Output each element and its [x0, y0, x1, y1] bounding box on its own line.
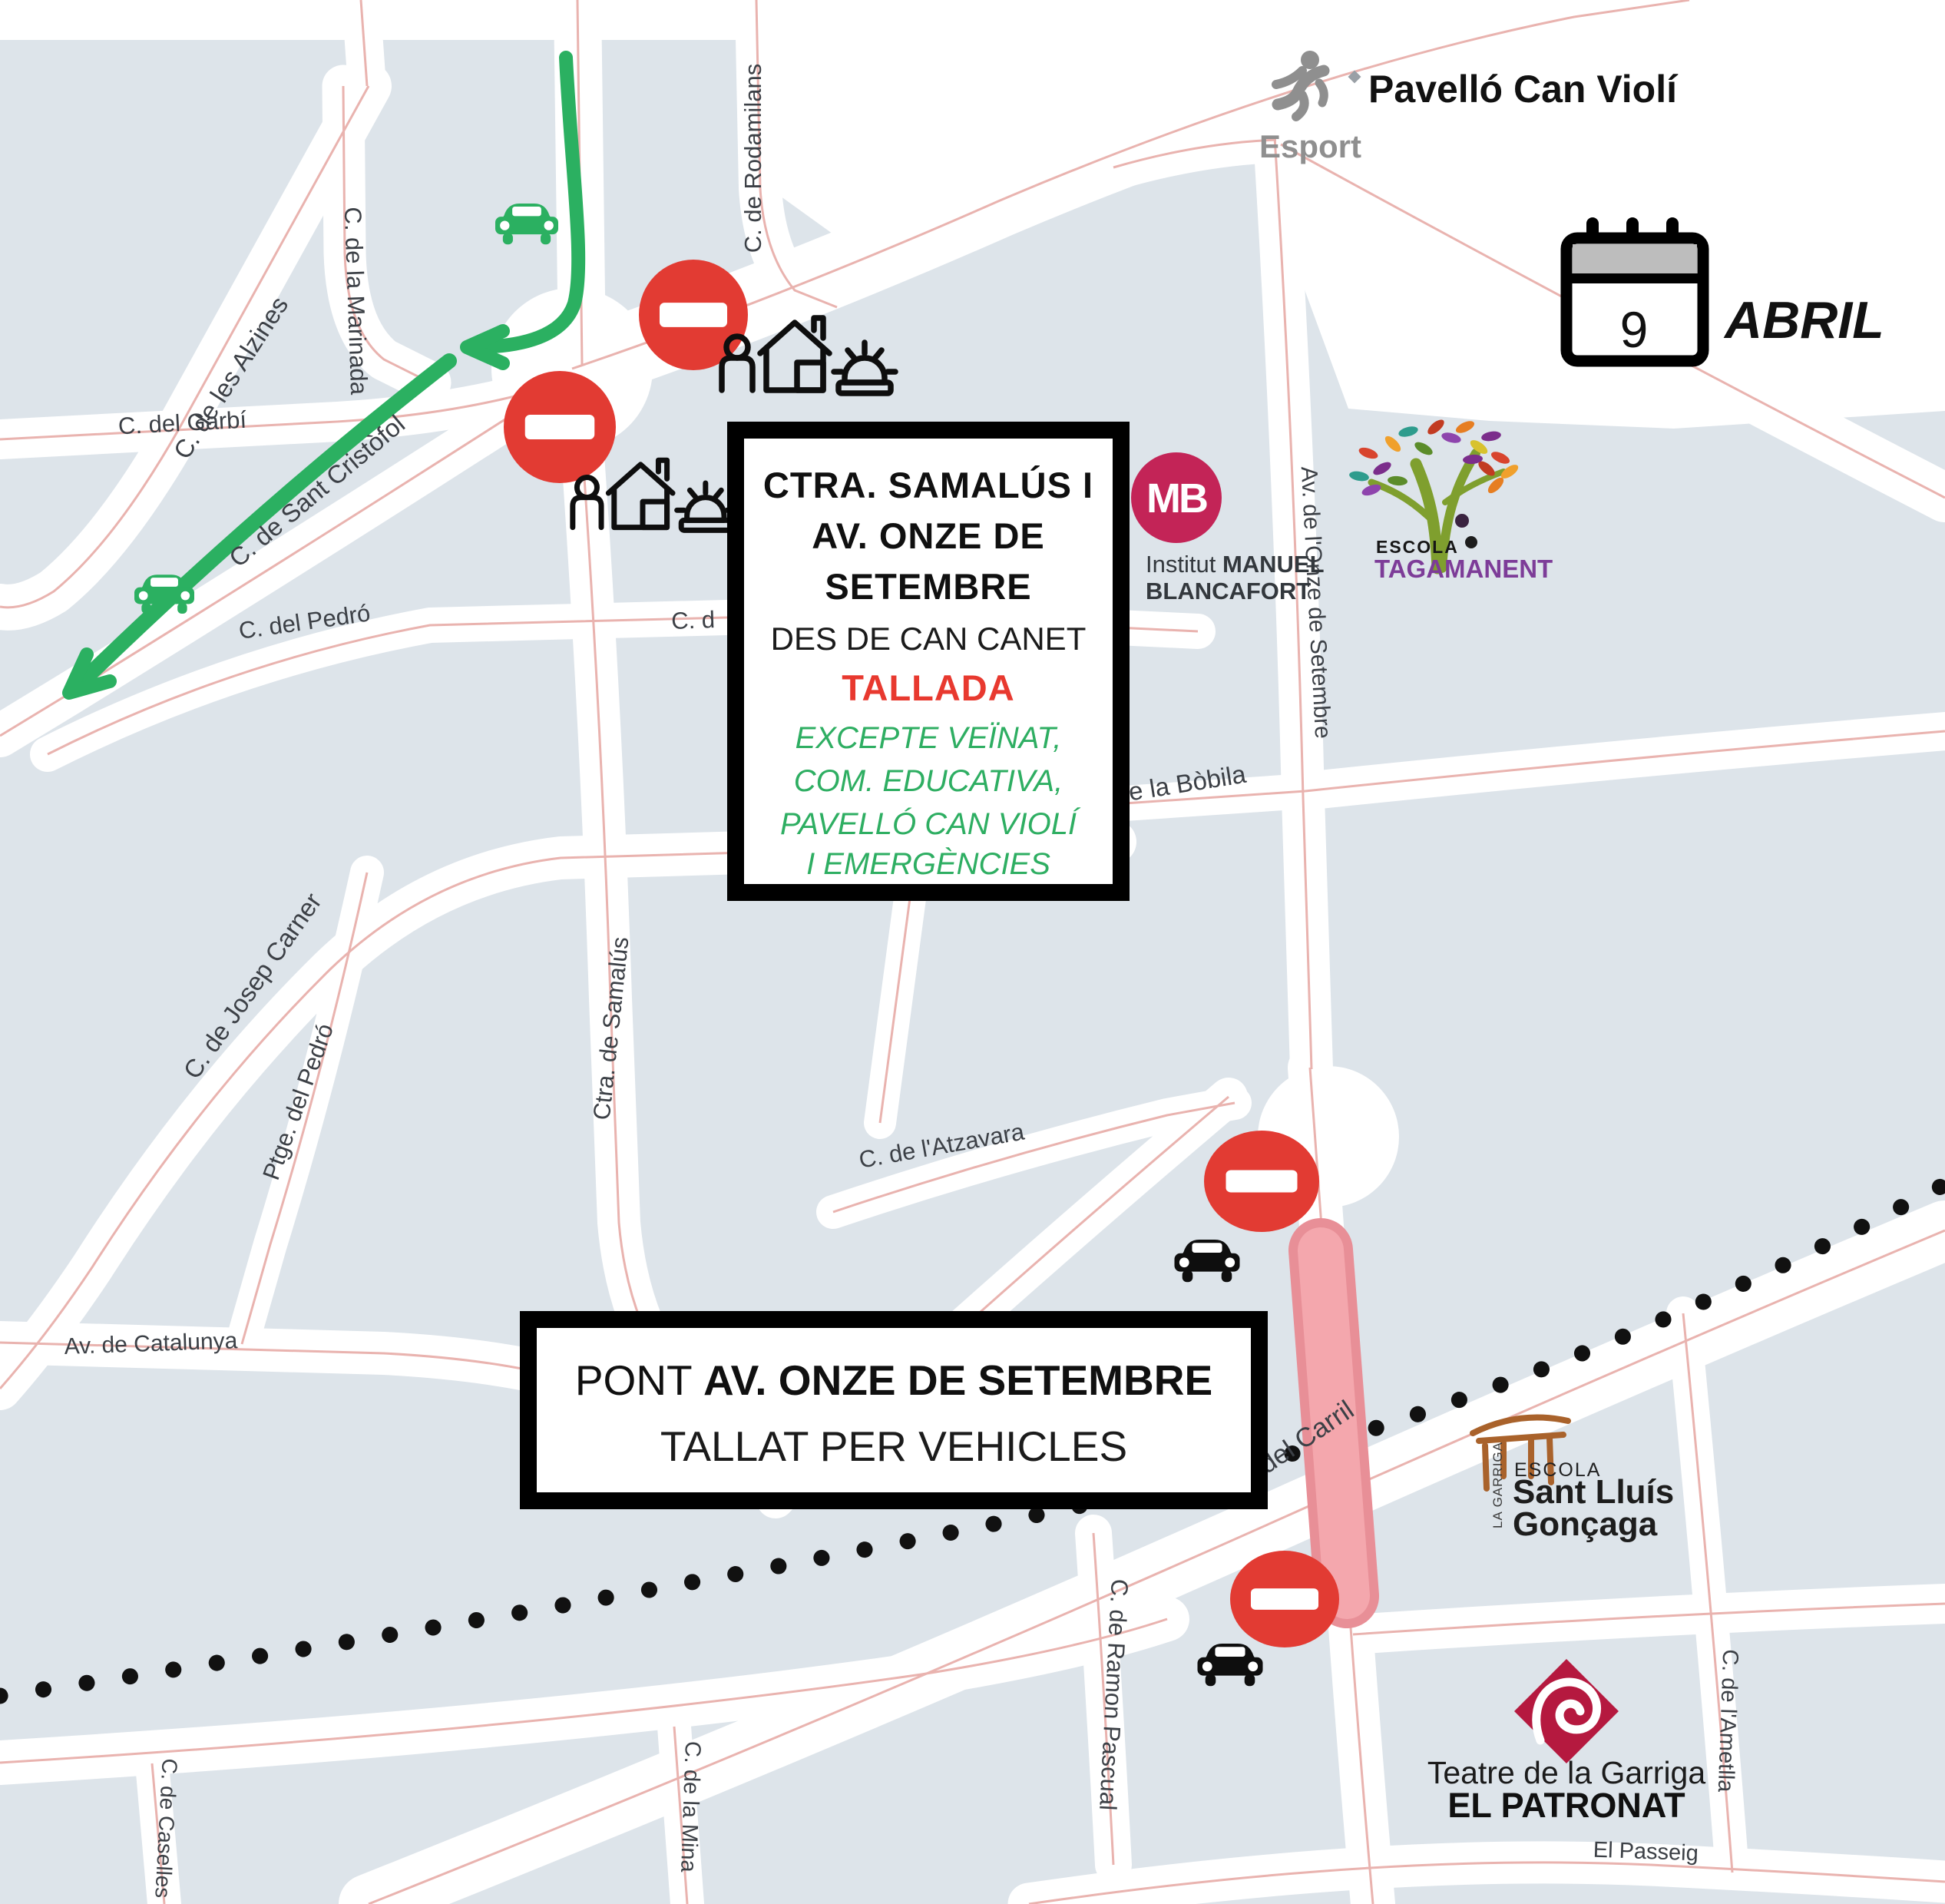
tagamanent-line2: TAGAMANENT [1374, 555, 1553, 583]
notice-box-bridge: PONT AV. ONZE DE SETEMBRE TALLAT PER VEH… [528, 1320, 1259, 1501]
street-label-pedro-east-partial: C. d [671, 606, 716, 634]
esport-label: Esport [1259, 128, 1361, 164]
main-title-line1: CTRA. SAMALÚS I [763, 465, 1093, 505]
bridge-prefix: PONT [575, 1356, 703, 1404]
date-month: ABRIL [1723, 291, 1884, 349]
street-label-passeig: El Passeig [1593, 1838, 1699, 1866]
sant-lluis-line3: Gonçaga [1513, 1505, 1658, 1543]
venue-title: Pavelló Can Violí [1368, 68, 1679, 111]
tree-figure-1 [1455, 514, 1469, 528]
main-exception-2: COM. EDUCATIVA, [794, 764, 1063, 798]
date-day: 9 [1620, 301, 1649, 358]
no-entry-icon-2 [504, 371, 616, 483]
page-title: Pavelló Can Violí [1348, 68, 1679, 111]
tree-figure-2 [1465, 536, 1477, 548]
map-canvas: C. de les Alzines C. de la Marinada C. d… [0, 0, 1945, 1904]
teatre-line2: EL PATRONAT [1447, 1786, 1685, 1825]
main-exception-1: EXCEPTE VEÏNAT, [796, 721, 1062, 755]
main-title-line3: SETEMBRE [825, 566, 1031, 607]
street-label-rodamilans: C. de Rodamilans [739, 64, 766, 253]
institut-name-bold2: BLANCAFORT [1146, 578, 1311, 604]
main-title-line2: AV. ONZE DE [812, 515, 1045, 556]
no-entry-icon-3 [1204, 1131, 1319, 1232]
main-exception-4: I EMERGÈNCIES [806, 846, 1050, 881]
institut-name-light: Institut [1146, 551, 1222, 578]
no-entry-icon-4 [1230, 1551, 1339, 1647]
main-status: TALLADA [842, 667, 1014, 708]
institut-name-bold: MANUEL [1222, 551, 1325, 578]
main-subtitle: DES DE CAN CANET [771, 621, 1087, 657]
road-closure-infographic: { "header": { "venue_title": "Pavelló Ca… [0, 0, 1945, 1904]
mb-monogram: MB [1146, 475, 1207, 522]
notice-box-main: CTRA. SAMALÚS I AV. ONZE DE SETEMBRE DES… [736, 430, 1121, 892]
street-label-mina: C. de la Mina [676, 1740, 705, 1873]
street-label-ametlla: C. de l'Ametlla [1713, 1649, 1743, 1793]
bridge-detail: TALLAT PER VEHICLES [660, 1422, 1127, 1470]
svg-text:PONT AV. ONZE DE SETEMBRE: PONT AV. ONZE DE SETEMBRE [575, 1356, 1212, 1404]
calendar-icon: 9 [1566, 217, 1703, 361]
main-exception-3: PAVELLÓ CAN VIOLÍ [780, 806, 1081, 841]
sant-lluis-side-label: LA GARRIGA [1490, 1442, 1505, 1528]
svg-text:Institut MANUEL: Institut MANUEL [1146, 551, 1325, 578]
bridge-road: AV. ONZE DE SETEMBRE [703, 1356, 1212, 1404]
